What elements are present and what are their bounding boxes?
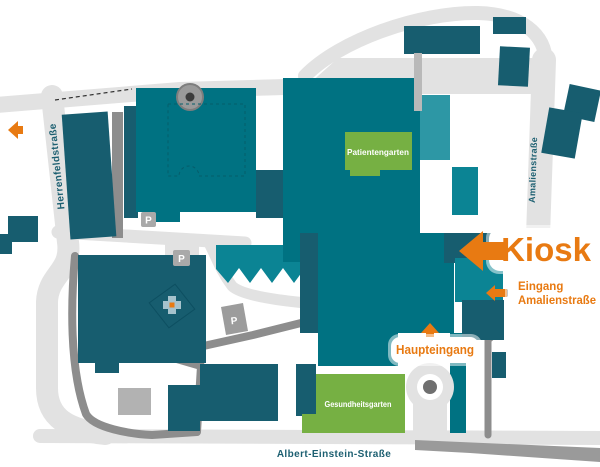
building bbox=[318, 333, 398, 366]
footpath-bridge bbox=[414, 53, 422, 111]
parking-icon: P bbox=[173, 250, 190, 266]
eingang-label-line2: Amalienstraße bbox=[518, 295, 596, 307]
left-arrow-icon bbox=[8, 121, 23, 139]
parking-p-label: P bbox=[178, 254, 185, 265]
campus-map-canvas: Patientengarten Gesundheitsgarten P bbox=[0, 0, 600, 467]
campus-map: Patientengarten Gesundheitsgarten P bbox=[0, 0, 600, 467]
building-southwest-block bbox=[78, 255, 206, 363]
building bbox=[8, 216, 38, 242]
building bbox=[95, 363, 119, 373]
building bbox=[0, 234, 12, 254]
building-center-block bbox=[318, 233, 454, 333]
building bbox=[62, 112, 117, 240]
building bbox=[420, 95, 450, 160]
eingang-label-line1: Eingang bbox=[518, 281, 563, 293]
building bbox=[124, 106, 138, 218]
building-connector bbox=[256, 170, 284, 218]
dome-center-icon bbox=[186, 93, 195, 102]
building bbox=[493, 17, 526, 34]
building-north bbox=[404, 26, 480, 54]
building bbox=[300, 233, 318, 333]
parking-icon: P bbox=[141, 212, 156, 227]
building bbox=[200, 364, 278, 421]
gesundheitsgarten-label: Gesundheitsgarten bbox=[325, 399, 392, 409]
building bbox=[296, 364, 316, 416]
parking-p-label: P bbox=[145, 216, 152, 227]
building bbox=[492, 352, 506, 378]
building-gray bbox=[118, 388, 151, 415]
haupteingang-label: Haupteingang bbox=[396, 343, 474, 357]
street-label-albert-einstein-strasse: Albert-Einstein-Straße bbox=[277, 449, 391, 460]
kiosk-label: Kiosk bbox=[501, 231, 592, 268]
building bbox=[450, 363, 466, 433]
building bbox=[452, 167, 478, 215]
building bbox=[498, 46, 530, 87]
parking-icon: P bbox=[221, 303, 248, 335]
patientengarten-label: Patientengarten bbox=[347, 147, 409, 157]
building bbox=[168, 385, 200, 431]
roundabout-icon bbox=[406, 363, 454, 440]
road-albert-einstein-strasse bbox=[40, 436, 600, 438]
